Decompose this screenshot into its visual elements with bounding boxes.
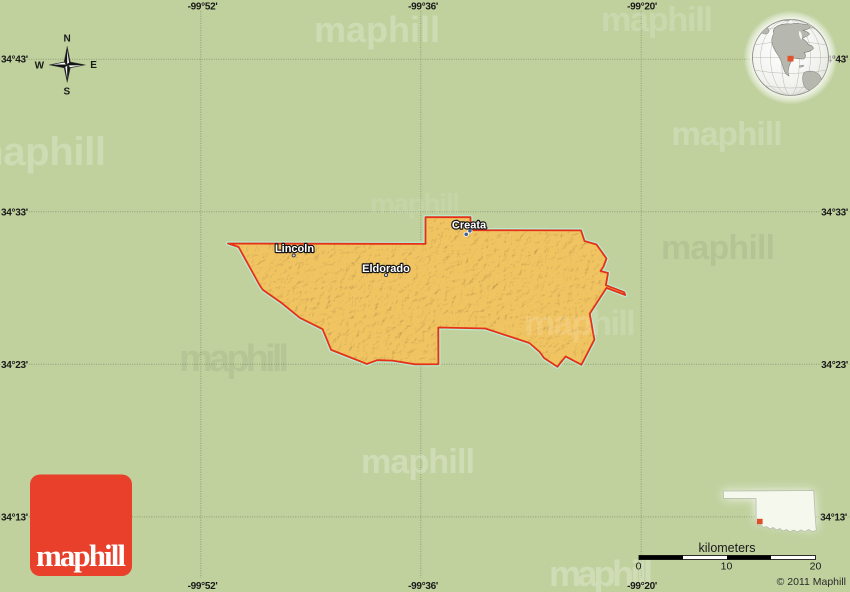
svg-text:S: S — [64, 87, 71, 98]
svg-text:maphill: maphill — [672, 115, 783, 152]
svg-text:-99°52': -99°52' — [188, 2, 218, 13]
svg-text:-99°20': -99°20' — [627, 2, 657, 13]
svg-text:34°13': 34°13' — [820, 512, 847, 523]
svg-text:-99°36': -99°36' — [408, 581, 438, 592]
svg-text:34°33': 34°33' — [821, 207, 848, 218]
svg-text:maphill: maphill — [661, 229, 775, 267]
svg-text:-99°20': -99°20' — [627, 581, 657, 592]
svg-text:34°33': 34°33' — [1, 207, 28, 218]
svg-text:-99°36': -99°36' — [408, 2, 438, 13]
svg-text:maphill: maphill — [0, 130, 106, 174]
svg-text:20: 20 — [810, 561, 822, 573]
svg-text:maphill: maphill — [36, 538, 126, 573]
svg-text:kilometers: kilometers — [699, 541, 756, 555]
svg-text:10: 10 — [721, 561, 733, 573]
svg-text:Creata: Creata — [452, 220, 487, 232]
svg-text:© 2011 Maphill: © 2011 Maphill — [777, 576, 846, 588]
svg-text:34°43': 34°43' — [1, 54, 28, 65]
svg-text:Lincoln: Lincoln — [275, 243, 314, 255]
svg-text:Eldorado: Eldorado — [362, 263, 410, 275]
svg-text:34°23': 34°23' — [821, 360, 848, 371]
svg-text:-99°52': -99°52' — [188, 581, 218, 592]
svg-text:0: 0 — [636, 561, 642, 573]
svg-text:34°23': 34°23' — [1, 360, 28, 371]
svg-text:34°13': 34°13' — [1, 512, 28, 523]
svg-text:E: E — [90, 60, 97, 71]
svg-text:maphill: maphill — [314, 9, 440, 50]
svg-text:W: W — [35, 60, 45, 71]
svg-text:maphill: maphill — [524, 304, 636, 343]
svg-text:maphill: maphill — [361, 443, 475, 481]
svg-text:N: N — [63, 34, 70, 45]
svg-text:maphill: maphill — [370, 188, 460, 219]
svg-text:maphill: maphill — [601, 1, 713, 39]
svg-text:maphill: maphill — [179, 338, 289, 380]
